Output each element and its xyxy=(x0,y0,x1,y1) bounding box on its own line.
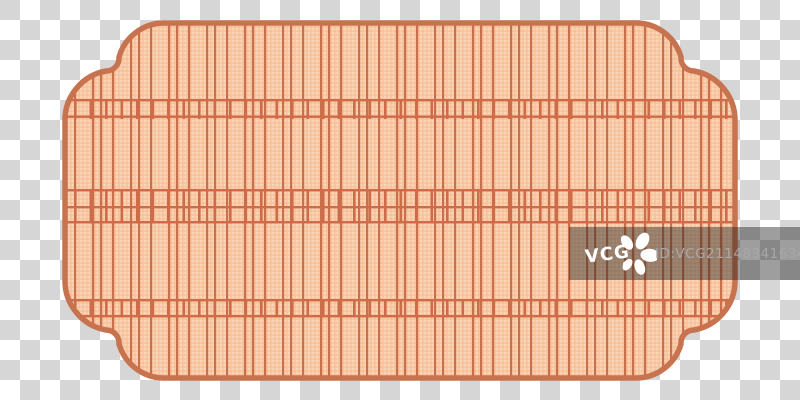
watermark-id-text: ID:VCG211483416341 xyxy=(655,246,800,262)
ornamental-frame-graphic xyxy=(0,0,800,400)
vcg-flower-icon xyxy=(613,229,657,279)
transparency-checkerboard: VCG ID:VCG211483416341 xyxy=(0,0,800,400)
vcg-watermark: VCG ID:VCG211483416341 xyxy=(569,227,800,280)
